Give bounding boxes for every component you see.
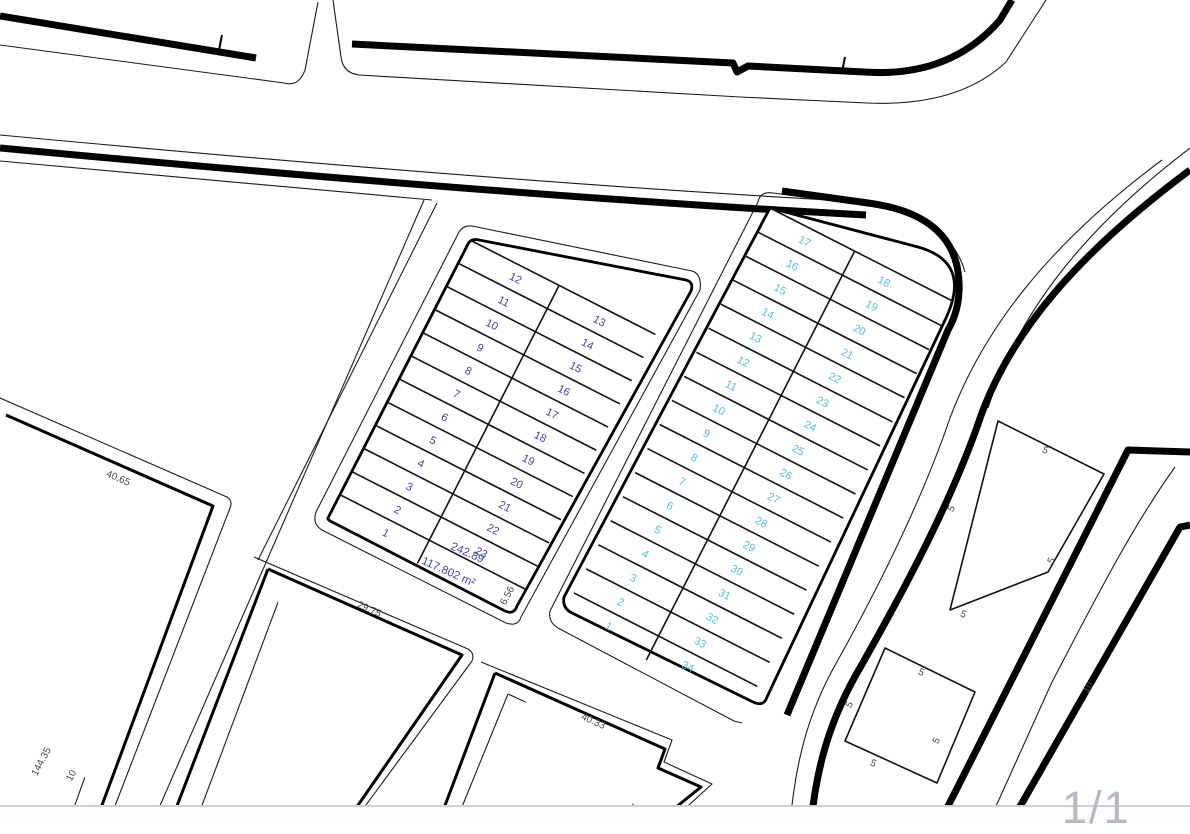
page-indicator: 1/1 xyxy=(1062,782,1172,834)
dimension-d5_4: 5 xyxy=(958,609,968,622)
dimension-d144_35: 144.35 xyxy=(30,745,54,778)
dimension-d5_2: 5 xyxy=(946,503,959,513)
dimension-d5_8: 5 xyxy=(868,758,878,771)
plan-page: 1234567891011121314151617181920212223 12… xyxy=(0,0,1190,824)
dimension-d10_left: 10 xyxy=(64,768,79,783)
dimension-d5_6: 5 xyxy=(844,699,857,709)
page-margin xyxy=(0,807,1190,824)
site-plan[interactable]: 1234567891011121314151617181920212223 12… xyxy=(0,0,1190,824)
